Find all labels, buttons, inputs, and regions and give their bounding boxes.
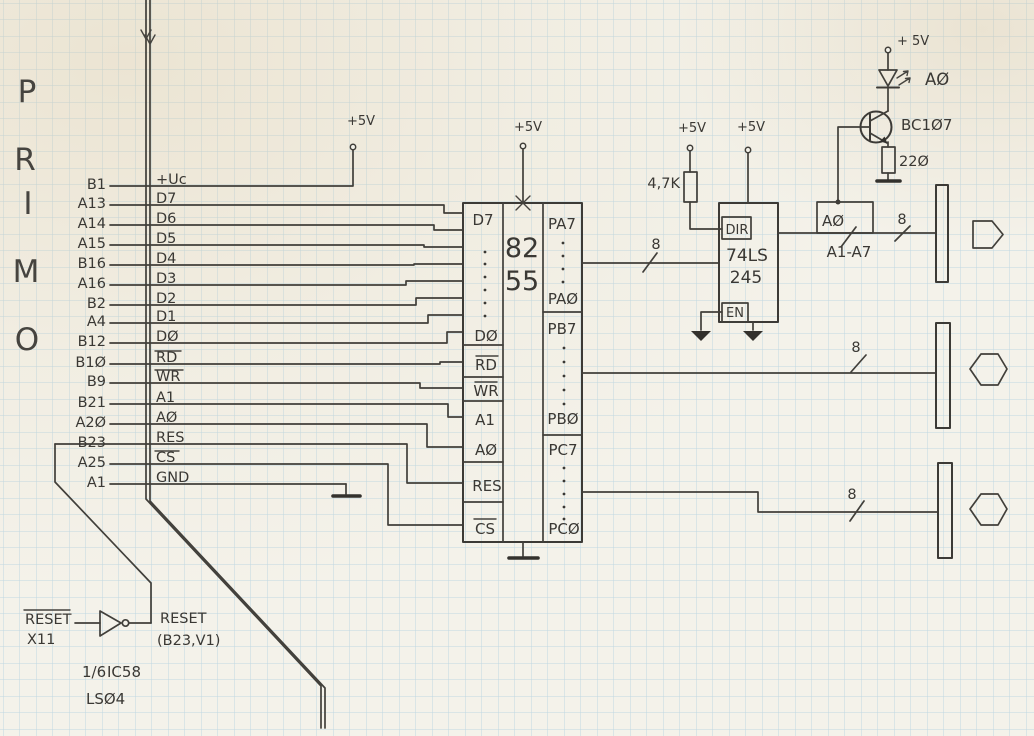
en-pin-label: EN <box>726 306 744 321</box>
plus5v-label-led: + 5V <box>897 34 929 49</box>
signal-label: RD <box>156 350 177 366</box>
signal-label: D4 <box>156 251 176 267</box>
signal-label: D5 <box>156 231 176 247</box>
pin-pc0: PCØ <box>548 520 580 538</box>
dir-pin-label: DIR <box>726 223 749 238</box>
reset-output-conn-label: (B23,V1) <box>157 633 220 649</box>
pin-pc7: PC7 <box>548 441 577 459</box>
pin-label: A2Ø <box>75 415 106 431</box>
pin-label: A13 <box>78 196 106 212</box>
pin-label: B23 <box>78 435 106 451</box>
primo-letter-o: O <box>15 322 39 358</box>
bus-width-8-abus: 8 <box>897 212 906 228</box>
plus5v-terminal-8255 <box>520 143 525 148</box>
resistor-value-label: 22Ø <box>899 154 929 170</box>
signal-label: D1 <box>156 309 176 325</box>
primo-letter-m: M <box>13 254 40 290</box>
pin-label: B16 <box>78 256 106 272</box>
a0-bit-label: AØ <box>822 212 844 230</box>
signal-label: WR <box>156 369 180 385</box>
schematic-svg: P R I M O +5V B1 A13 A14 A15 B16 A16 B2 … <box>0 0 1034 736</box>
plus5v-terminal-uc <box>350 144 355 149</box>
pin-d7: D7 <box>472 211 493 229</box>
pin-label: B1 <box>87 177 106 193</box>
signal-label: D7 <box>156 191 176 207</box>
pin-pa0: PAØ <box>548 290 578 308</box>
pin-label: A14 <box>78 216 106 232</box>
signal-label: GND <box>156 470 189 486</box>
pin-pb0: PBØ <box>547 410 578 428</box>
pin-label: B2 <box>87 296 106 312</box>
pin-label: A1 <box>87 475 106 491</box>
signal-label: D6 <box>156 211 176 227</box>
reset-input-conn-label: X11 <box>27 632 55 648</box>
primo-letter-i: I <box>23 186 32 222</box>
pin-label: A15 <box>78 236 106 252</box>
scan-tint-topright <box>0 0 1034 736</box>
plus5v-terminal-led <box>885 47 890 52</box>
signal-label: AØ <box>156 410 177 426</box>
plus5v-terminal-pullup <box>687 145 692 150</box>
pin-res: RES <box>472 477 501 495</box>
reset-input-label: RESET <box>25 612 72 628</box>
signal-label: D2 <box>156 291 176 307</box>
plus5v-label-245: +5V <box>737 120 765 135</box>
signal-label: DØ <box>156 329 179 345</box>
primo-letter-p: P <box>18 74 37 110</box>
primo-letter-r: R <box>14 142 36 178</box>
pin-a1: A1 <box>475 411 495 429</box>
pullup-value-label: 4,7K <box>647 176 680 192</box>
bus-width-8-pa: 8 <box>651 237 660 253</box>
gate-fraction-label: 1/6 <box>82 663 106 681</box>
pin-label: A16 <box>78 276 106 292</box>
signal-label: CS <box>156 450 175 466</box>
signal-label: RES <box>156 430 184 446</box>
led-signal-label: AØ <box>925 70 949 89</box>
reset-output-label: RESET <box>160 611 207 627</box>
gate-part-label: LSØ4 <box>86 690 125 708</box>
pin-wr: WR <box>473 382 498 400</box>
pin-label: A4 <box>87 314 106 330</box>
bus-width-8-pb: 8 <box>851 340 860 356</box>
graph-paper <box>0 0 1034 736</box>
plus5v-label-8255: +5V <box>514 120 542 135</box>
pin-label: B21 <box>78 395 106 411</box>
signal-label: D3 <box>156 271 176 287</box>
pin-d0: DØ <box>474 327 498 345</box>
a1-a7-label: A1-A7 <box>827 243 872 261</box>
transistor-part-label: BC1Ø7 <box>901 116 952 134</box>
ic-245-name-1: 74LS <box>726 246 768 266</box>
plus5v-label-pullup: +5V <box>678 121 706 136</box>
signal-label: A1 <box>156 390 175 406</box>
pin-rd: RD <box>475 356 497 374</box>
pin-label: B9 <box>87 374 106 390</box>
schematic-scan: P R I M O +5V B1 A13 A14 A15 B16 A16 B2 … <box>0 0 1034 736</box>
pin-label: A25 <box>78 455 106 471</box>
gate-ic-label: IC58 <box>107 663 141 681</box>
bus-width-8-pc: 8 <box>847 487 856 503</box>
pin-label: B12 <box>78 334 106 350</box>
pin-label: B1Ø <box>75 355 106 371</box>
pin-a0: AØ <box>475 441 497 459</box>
signal-label: +Uc <box>156 172 187 188</box>
ic-245-name-2: 245 <box>730 268 762 288</box>
pin-cs: CS <box>475 520 495 538</box>
pin-pb7: PB7 <box>548 320 577 338</box>
ic-8255-name-2: 55 <box>505 266 539 297</box>
pin-pa7: PA7 <box>548 215 576 233</box>
bus-row-pin-labels: B1 A13 A14 A15 B16 A16 B2 A4 B12 B1Ø B9 … <box>75 177 106 491</box>
plus5v-label-uc: +5V <box>347 114 375 129</box>
ic-8255-name-1: 82 <box>505 233 539 264</box>
plus5v-terminal-245 <box>745 147 750 152</box>
